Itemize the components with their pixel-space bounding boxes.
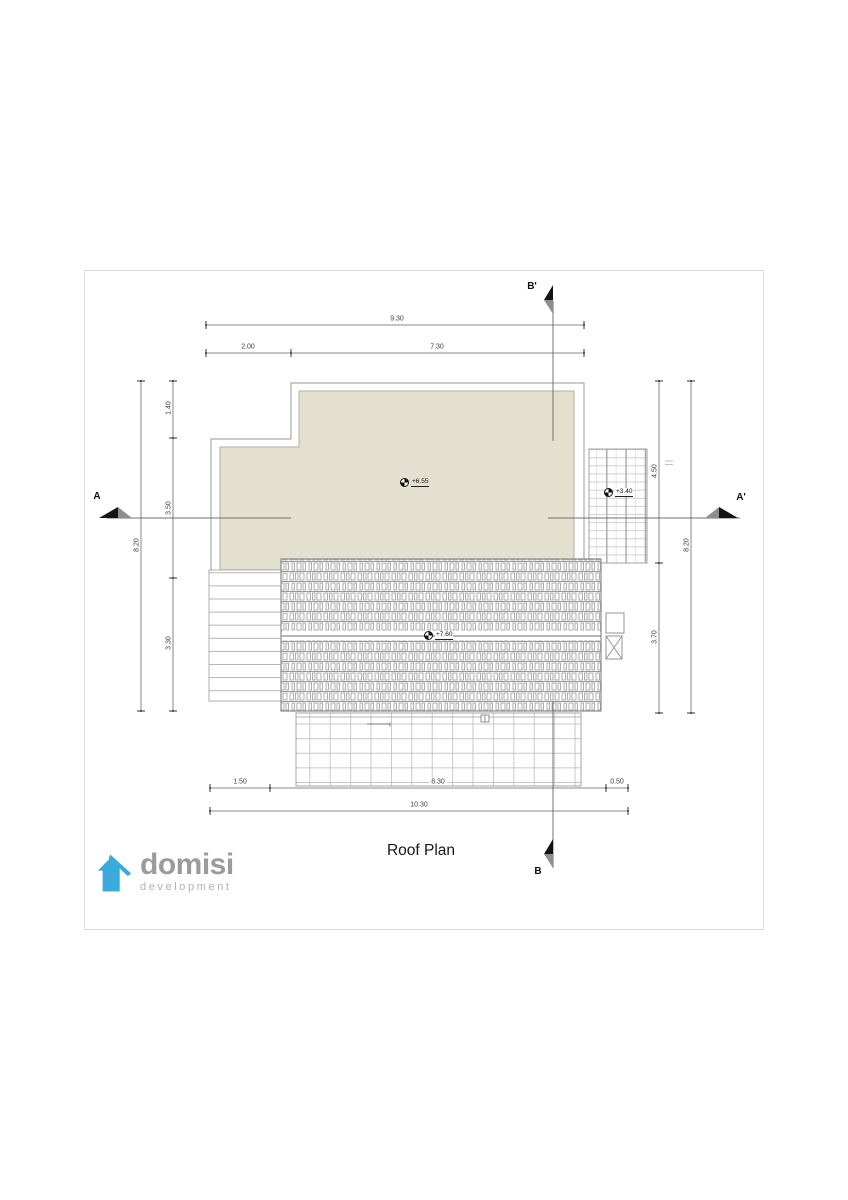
- chimney-base: [606, 613, 624, 633]
- level-target-icon: [400, 478, 409, 487]
- page-canvas: { "sheet": { "title": "Roof Plan", "logo…: [0, 0, 848, 1200]
- drawing-title: Roof Plan: [387, 842, 455, 860]
- dim-left-seg1: 1.40: [166, 399, 173, 417]
- dim-bottom-total: 10.30: [408, 802, 430, 809]
- section-arrow-b-prime: [544, 285, 553, 314]
- section-arrow-b: [544, 839, 553, 868]
- level-target-icon: [424, 631, 433, 640]
- main-roof-surface: [220, 391, 574, 570]
- logo-house-icon: [95, 852, 133, 893]
- level-main-roof: +6.55: [400, 478, 429, 487]
- deck-hatch-symbol: [481, 715, 489, 722]
- level-tiled-roof-label: +7.60: [435, 631, 453, 640]
- level-annex-roof: +3.40: [604, 488, 633, 497]
- drawing-sheet: 9.30 2.00 7.30 1.40 3.50 3.30 8.20 4.50 …: [84, 270, 764, 930]
- logo-name: domisi: [140, 852, 234, 878]
- section-label-a: A: [93, 492, 100, 502]
- dim-left-seg2: 3.50: [166, 499, 173, 517]
- level-tiled-roof: +7.60: [424, 631, 453, 640]
- side-striped-roof: [209, 570, 281, 701]
- logo-text: domisi development: [140, 852, 234, 893]
- dim-bottom-seg2: 8.30: [429, 779, 447, 786]
- level-annex-roof-label: +3.40: [615, 488, 633, 497]
- dim-left-total: 8.20: [134, 536, 141, 554]
- dim-top-total: 9.30: [388, 316, 406, 323]
- deck-grid: [296, 713, 581, 786]
- equals-mark: [665, 461, 673, 465]
- logo: domisi development: [95, 852, 234, 893]
- level-main-roof-label: +6.55: [411, 478, 429, 487]
- section-label-b: B: [534, 867, 541, 877]
- dim-bottom-seg1: 1.50: [231, 779, 249, 786]
- dim-right-seg1: 4.50: [652, 462, 659, 480]
- dim-left-seg3: 3.30: [166, 634, 173, 652]
- section-label-b-prime: B': [527, 282, 537, 292]
- dim-top-seg1: 2.00: [239, 344, 257, 351]
- dim-top-seg2: 7.30: [428, 344, 446, 351]
- section-label-a-prime: A': [736, 493, 746, 503]
- dim-right-seg2: 3.70: [652, 628, 659, 646]
- annex-roof-grid: [589, 449, 647, 563]
- section-arrow-a: [99, 507, 132, 518]
- dim-bottom-seg3: 0.50: [608, 779, 626, 786]
- roof-plan-drawing: [85, 271, 765, 931]
- level-target-icon: [604, 488, 613, 497]
- dim-right-total: 8.20: [684, 536, 691, 554]
- logo-tagline: development: [140, 881, 234, 893]
- section-arrow-a-prime: [705, 507, 738, 518]
- chimney-xbox: [606, 636, 622, 659]
